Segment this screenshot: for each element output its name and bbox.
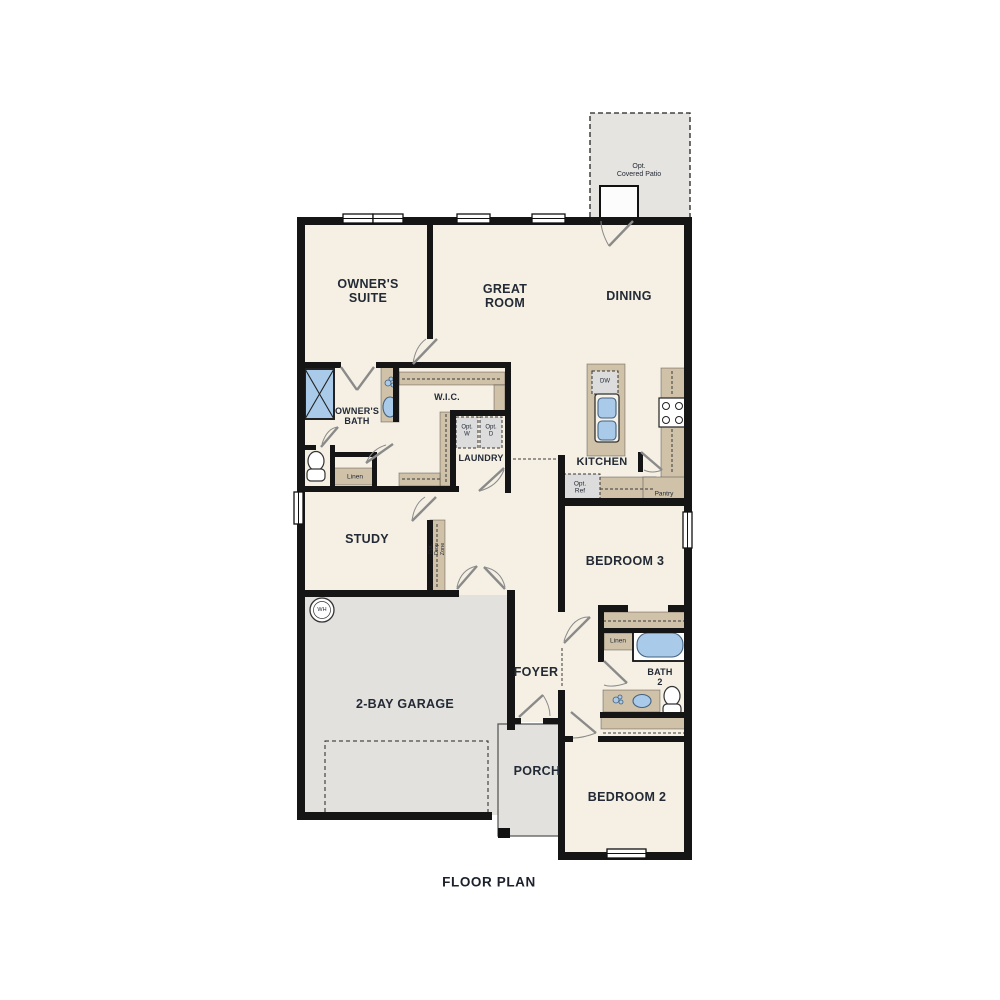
owners-toilet-icon (307, 452, 325, 482)
room-label-bedroom2: BEDROOM 2 (588, 790, 666, 804)
room-label-garage: 2-BAY GARAGE (356, 697, 454, 711)
label-owners-linen: Linen (347, 473, 363, 480)
label-water-heater: WH (317, 607, 326, 613)
plan-title: FLOOR PLAN (442, 874, 536, 889)
floor-plan-drawing (0, 0, 1000, 1000)
patio-stoop (600, 186, 638, 219)
label-opt-covered-patio: Opt. Covered Patio (617, 163, 661, 179)
room-label-bath2: BATH 2 (647, 667, 672, 687)
porch-area (498, 724, 560, 836)
label-dishwasher: DW (600, 379, 610, 386)
room-label-study: STUDY (345, 532, 389, 546)
room-label-owners-suite: OWNER'S SUITE (337, 277, 398, 305)
bathtub-icon (637, 633, 683, 657)
room-label-laundry: LAUNDRY (458, 453, 503, 463)
label-opt-washer: Opt. W (461, 424, 472, 437)
room-label-wic: W.I.C. (434, 392, 460, 402)
room-label-owners-bath: OWNER'S BATH (335, 406, 379, 426)
room-label-porch: PORCH (514, 764, 561, 778)
label-pantry: Pantry (655, 490, 674, 497)
room-label-great-room: GREAT ROOM (483, 282, 527, 310)
room-label-dining: DINING (606, 289, 652, 303)
wic-shelf-right (494, 385, 505, 412)
bedroom2-closet-shelf (601, 717, 686, 729)
bath2-toilet-icon (663, 687, 681, 716)
label-opt-dryer: Opt. D (485, 424, 496, 437)
bath2-sink-icon (633, 695, 651, 708)
label-hall-linen: Linen (610, 637, 626, 644)
label-opt-drop-zone: Opt. Drop Zone (428, 543, 446, 556)
island-sink-basin1-icon (598, 398, 616, 418)
room-label-bedroom3: BEDROOM 3 (586, 554, 664, 568)
floor-plan-canvas: OWNER'S SUITE GREAT ROOM DINING OWNER'S … (0, 0, 1000, 1000)
porch-post (498, 828, 510, 838)
island-sink-basin2-icon (598, 421, 616, 440)
room-label-foyer: FOYER (514, 665, 559, 679)
room-label-kitchen: KITCHEN (577, 456, 628, 468)
label-opt-ref: Opt. Ref (574, 481, 586, 496)
